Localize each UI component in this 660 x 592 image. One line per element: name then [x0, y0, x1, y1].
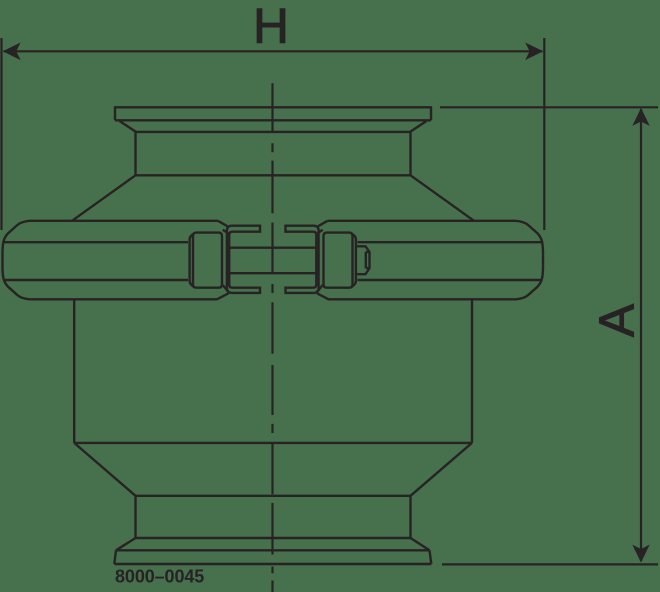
svg-text:H: H: [253, 0, 289, 53]
svg-text:8000–0045: 8000–0045: [115, 566, 204, 586]
svg-text:A: A: [590, 304, 645, 337]
